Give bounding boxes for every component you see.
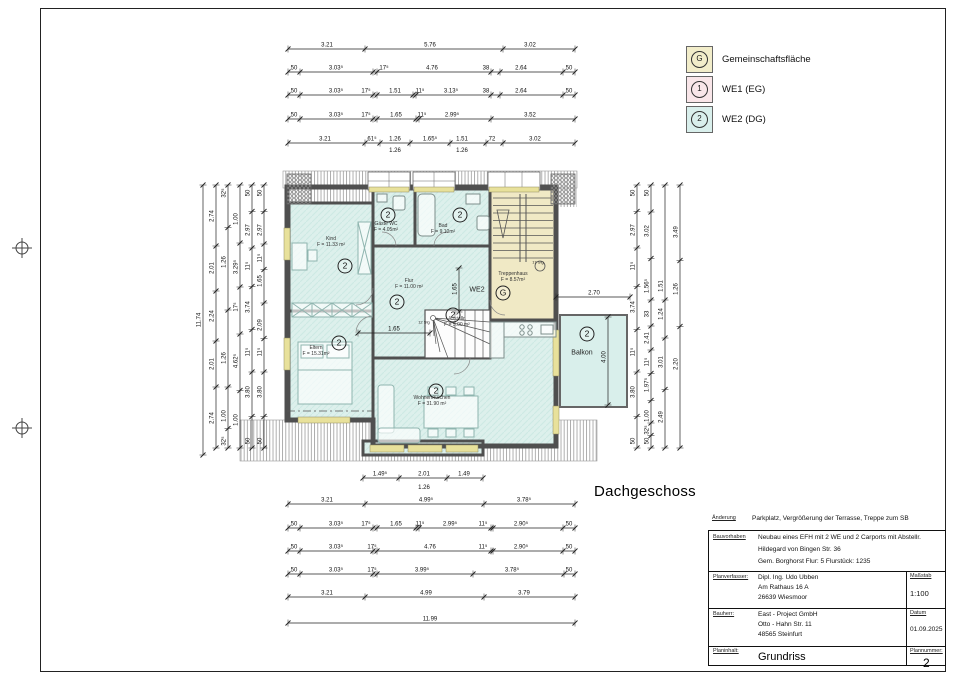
dim-label: 3.80 [631,386,637,398]
dim-label: 1.56⁵ [644,278,651,293]
dim-label: 1.26 [389,137,401,143]
dim-label: 17⁵ [367,544,377,551]
dim-label: 11⁵ [245,347,252,356]
plan-text: 12 Stg [418,320,430,325]
dim-label: 2.01 [418,472,430,478]
dim-label: 11⁵ [416,521,425,528]
room-label: TreppenhausF = 8.57m² [498,271,527,284]
dim-label: 2.64 [515,89,527,95]
legend-symbol: G [691,51,708,68]
dim-label: 3.03⁵ [329,112,344,119]
legend-swatch: 2 [686,106,713,133]
legend-label: WE2 (DG) [722,114,766,125]
dim-label: 50 [258,189,264,196]
dim-label: 32⁵ [221,436,228,446]
bauherr-line1: East - Project GmbH [758,611,818,618]
chimney [551,174,575,204]
dim-label: 2.97 [258,224,264,236]
dim-label: 11⁵ [479,544,488,551]
dim-label: 4.99 [420,591,432,597]
wardrobe-band [292,303,372,317]
planverfasser-line2: Am Rathaus 16 A [758,584,809,591]
dim-label: 11⁵ [245,261,252,270]
balkon [560,315,627,407]
aenderung-text: Parkplatz, Vergrößerung der Terrasse, Tr… [752,515,909,522]
dim-label: 11⁵ [418,112,427,119]
sink [466,194,480,204]
legend-symbol: 2 [691,111,708,128]
dim-label: 50 [291,89,298,95]
dim-label: 5.76 [424,43,436,49]
dim-label: 1.51 [659,280,665,292]
dim-label: 50 [645,437,651,444]
dim-label: 50 [631,189,637,196]
dim-label: 11⁵ [416,88,425,95]
dim-label: 2.20 [674,358,680,370]
dim-label: 11⁵ [257,253,264,262]
dim-label: 1.26 [674,283,680,295]
title-block-table: Bauvorhaben Neubau eines EFH mit 2 WE un… [708,530,946,666]
unit-badge-2: 2 [390,295,405,310]
planverfasser-label: Planverfasser: [713,574,748,580]
room-label: KindF = 11.33 m² [317,236,345,249]
planverfasser-line1: Dipl. Ing. Udo Ubben [758,574,818,581]
planinhalt-value: Grundriss [758,651,806,663]
room-label: FlurF = 11.00 m² [395,278,423,291]
dim-label: 4.76 [426,66,438,72]
dim-label: 50 [291,545,298,551]
dim-label: 2.99⁵ [443,521,458,528]
dim-label: 32⁵ [644,425,651,435]
dim-label: 17⁵ [367,567,377,574]
unit-badge-2: 2 [580,327,595,342]
dim-label: 1.65 [390,522,402,528]
dim-label: 1.65 [388,327,400,333]
dim-label: 50 [246,189,252,196]
dim-label: 3.52 [524,113,536,119]
legend-swatch: G [686,46,713,73]
dim-label: 2.01 [210,262,216,274]
dim-label: 1.65 [390,113,402,119]
dim-label: 3.03⁵ [329,521,344,528]
dim-label: 3.49 [674,226,680,238]
dim-label: 11⁵ [630,261,637,270]
dim-label: 2.97 [246,224,252,236]
dim-label: 33 [645,310,651,317]
plan-text: Balkon [571,350,592,357]
dim-label: 3.80 [258,386,264,398]
dim-label: 17⁵ [233,302,240,312]
dim-label: 1.26 [418,485,430,491]
dim-label: 17⁵ [361,521,371,528]
dim-label: 50 [291,522,298,528]
wc [393,196,405,210]
unit-badge-2: 2 [453,208,468,223]
legend-label: Gemeinschaftsfläche [722,54,811,65]
massstab-value: 1:100 [910,589,929,598]
dim-label: 72 [489,137,496,143]
unit-badge-2: 2 [446,308,461,323]
dim-label: 11⁵ [257,347,264,356]
unit-badge-2: 2 [338,259,353,274]
dim-label: 3.21 [321,591,333,597]
dim-label: 2.97 [631,224,637,236]
dim-label: 2.74 [210,210,216,222]
dim-label: 1.00 [234,414,240,426]
wc [477,216,489,230]
dim-label: 50 [258,437,264,444]
unit-badge-2: 2 [332,336,347,351]
dim-label: 17⁵ [361,112,371,119]
dim-label: 3.13⁵ [444,88,459,95]
dim-label: 1.00 [645,410,651,422]
dim-label: 2.74 [210,412,216,424]
dim-label: 2.99⁵ [445,112,460,119]
bauvorhaben-line2: Hildegard von Bingen Str. 36 [758,546,841,553]
title-block: Änderung Parkplatz, Vergrößerung der Ter… [708,511,946,665]
dim-label: 1.00 [222,410,228,422]
dim-label: 3.29⁵ [233,259,240,274]
legend-item-1: 1WE1 (EG) [686,74,811,104]
room-label: Gäste WCF = 4.05m² [374,221,398,234]
dim-label: 2.49 [659,411,665,423]
room-label: ElternF = 15.31m² [302,345,329,358]
dim-label: 2.64 [515,66,527,72]
registration-mark [12,238,32,438]
dim-label: 17⁵ [379,65,389,72]
legend-label: WE1 (EG) [722,84,765,95]
plannummer-label: Plannummer: [910,648,943,654]
dim-label: 50 [246,437,252,444]
legend-item-2: 2WE2 (DG) [686,104,811,134]
dim-label: 17⁵ [361,88,371,95]
dim-label: 1.65⁵ [423,136,438,143]
dim-label: 2.90⁵ [514,521,529,528]
dim-label: 2.41 [645,332,651,344]
dim-label: 50 [566,66,573,72]
dim-label: 50 [631,437,637,444]
dim-label: 3.03⁵ [329,65,344,72]
dim-label: 11⁵ [644,357,651,366]
bauvorhaben-line3: Gem. Borghorst Flur: 5 Flurstück: 1235 [758,558,870,565]
aenderung-label: Änderung [712,515,736,521]
legend-swatch: 1 [686,76,713,103]
massstab-label: Maßstab [910,573,931,579]
dim-label: 1.26 [222,352,228,364]
dim-label: 50 [291,568,298,574]
dim-label: 3.02 [524,43,536,49]
dim-label: 32⁵ [221,188,228,198]
dim-label: 3.03⁵ [329,567,344,574]
planverfasser-line3: 26639 Wiesmoor [758,594,807,601]
room-treppenhaus [490,189,556,320]
dim-label: 1.65 [258,275,264,287]
dim-label: 11.99 [423,617,438,623]
dim-label: 3.21 [321,498,333,504]
dim-label: 2.01 [210,358,216,370]
dim-label: 50 [566,89,573,95]
dim-label: 11⁵ [630,347,637,356]
dim-label: 1.51 [389,89,401,95]
dim-label: 38 [483,89,490,95]
dim-label: 1.24 [659,308,665,320]
dim-label: 1.51 [456,137,468,143]
dim-label: 3.02 [529,137,541,143]
bauherr-label: Bauherr: [713,611,734,617]
legend: GGemeinschaftsfläche1WE1 (EG)2WE2 (DG) [686,44,811,134]
bauherr-line2: Otto - Hahn Str. 11 [758,621,812,628]
unit-badge-g: G [496,286,511,301]
dim-label: 4.99⁵ [419,497,434,504]
dim-label: 50 [291,113,298,119]
drawing-sheet: 3.215.763.02503.03⁵17⁵4.76382.6450503.03… [0,0,960,679]
bauvorhaben-label: Bauvorhaben [713,534,746,540]
legend-symbol: 1 [691,81,708,98]
dim-label: 3.74 [631,301,637,313]
dim-label: 61⁵ [367,136,377,143]
dim-label: 50 [645,189,651,196]
dim-label: 3.02 [645,225,651,237]
planinhalt-label: Planinhalt: [713,648,739,654]
dim-label: 50 [291,66,298,72]
dim-label: 38 [483,66,490,72]
dim-label: 3.80 [246,386,252,398]
dim-label: 50 [566,545,573,551]
floor-title: Dachgeschoss [594,483,696,500]
desk [292,243,307,270]
dim-label: 1.26 [456,148,468,154]
dim-label: 4.00 [602,351,608,363]
dim-label: 3.03⁵ [329,544,344,551]
plannummer-value: 2 [923,656,930,670]
dim-label: 3.21 [319,137,331,143]
dim-label: 3.74 [246,301,252,313]
dim-label: 2.70 [588,291,600,297]
dim-label: 50 [566,568,573,574]
dim-label: 1.65 [453,283,459,295]
dim-label: 1.49⁵ [373,471,388,478]
dim-label: 1.49 [458,472,470,478]
dim-label: 4.62⁵ [233,353,240,368]
dim-label: 50 [566,522,573,528]
dim-label: 3.79 [518,591,530,597]
chimney [287,174,311,204]
dim-label: 2.09 [258,319,264,331]
dim-label: 2.24 [210,310,216,322]
dim-label: 1.26 [389,148,401,154]
dim-label: 3.99⁵ [415,567,430,574]
bauherr-line3: 48565 Steinfurt [758,631,802,638]
dim-label: 3.21 [321,43,333,49]
dim-label: 3.01 [659,356,665,368]
datum-value: 01.09.2025 [910,626,943,633]
dim-label: 1.97⁵ [644,377,651,392]
dim-label: 3.03⁵ [329,88,344,95]
dim-label: 2.90⁵ [514,544,529,551]
dim-label: 4.76 [424,545,436,551]
plan-text: 17 Stg [532,260,544,265]
chair [308,250,317,261]
legend-item-g: GGemeinschaftsfläche [686,44,811,74]
dim-label: 1.26 [222,256,228,268]
dim-label: 1.00 [234,213,240,225]
sink [377,194,387,202]
room-label: BadF = 9.10m² [431,223,455,236]
plan-text: WE2 [469,287,484,294]
dim-label: 11.74 [197,312,203,327]
unit-badge-2: 2 [381,208,396,223]
dim-label: 3.78⁵ [505,567,520,574]
dim-label: 3.78⁵ [517,497,532,504]
dim-label: 11⁵ [479,521,488,528]
datum-label: Datum [910,610,926,616]
bauvorhaben-line1: Neubau eines EFH mit 2 WE und 2 Carports… [758,534,921,541]
unit-badge-2: 2 [429,384,444,399]
